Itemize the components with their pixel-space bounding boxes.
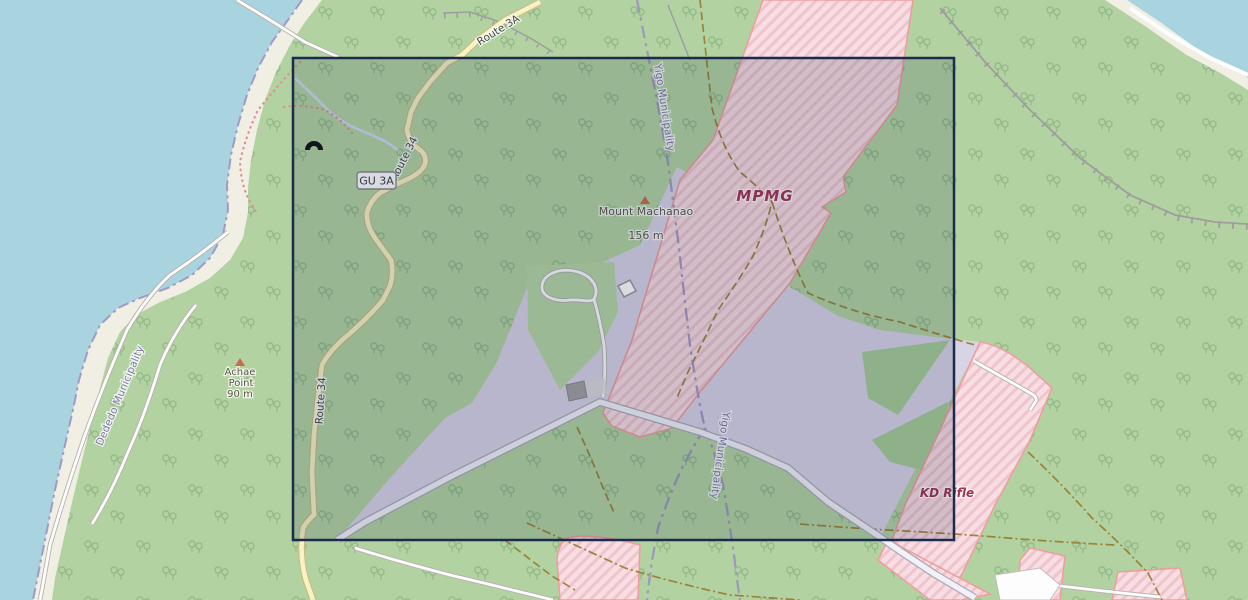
map-canvas[interactable]: Route 3A Route 34 Route 34 GU 3A Mount M… [0,0,1248,600]
achae-point-label-2: Point [229,378,254,389]
map-viewport[interactable]: Route 3A Route 34 Route 34 GU 3A Mount M… [0,0,1248,600]
selection-rectangle[interactable] [293,58,954,540]
achae-point-label-1: Achae [225,367,256,378]
achae-point-elev: 90 m [227,389,253,400]
